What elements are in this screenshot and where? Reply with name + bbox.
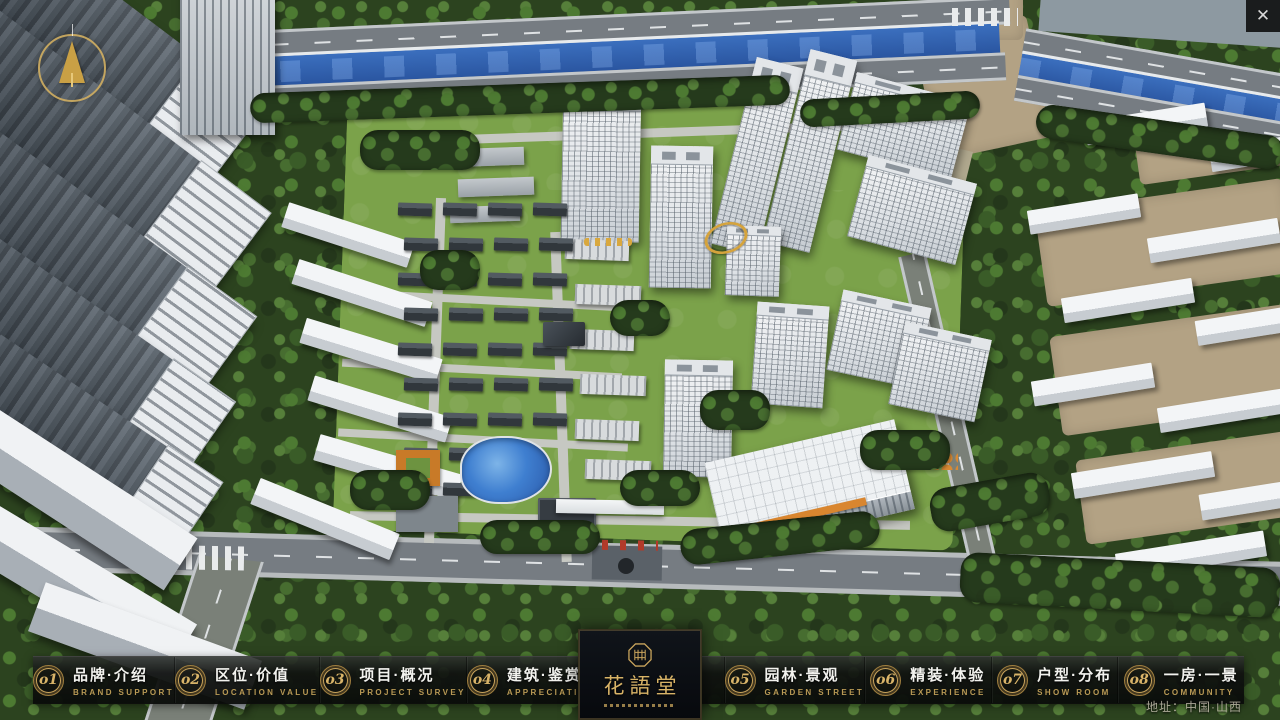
nav-number-badge: o7	[997, 665, 1028, 696]
pavilion	[543, 322, 585, 346]
midrise-building	[580, 374, 647, 396]
tree-clump	[360, 130, 480, 170]
nav-label-zh: 区位·价值	[215, 664, 290, 685]
crosswalk	[952, 8, 1018, 26]
nav-label-en: BRAND SUPPORT	[73, 688, 174, 697]
nav-number-badge: o4	[467, 665, 498, 696]
nav-item-floorplan-distribution[interactable]: o7户型·分布SHOW ROOM	[991, 657, 1118, 703]
nav-label-zh: 建筑·鉴赏	[507, 664, 582, 685]
nav-label-zh: 一房·一景	[1164, 664, 1239, 685]
tree-clump	[860, 430, 950, 470]
project-name: 花語堂	[599, 670, 682, 700]
residential-tower	[561, 89, 642, 242]
nav-label-zh: 品牌·介绍	[73, 664, 148, 685]
low-building	[458, 177, 535, 198]
nav-number-badge: o3	[320, 665, 351, 696]
nav-number-badge: o5	[725, 665, 756, 696]
residential-tower	[888, 322, 992, 422]
midrise-building	[575, 419, 640, 441]
nav-number-badge: o2	[175, 665, 206, 696]
logo-seal-icon	[627, 642, 653, 668]
nav-item-architecture[interactable]: o4建筑·鉴赏APPRECIATION	[466, 657, 596, 703]
nav-number-badge: o8	[1124, 665, 1155, 696]
tree-clump	[610, 300, 670, 336]
low-building	[450, 205, 521, 223]
nav-item-garden-landscape[interactable]: o5园林·景观GARDEN STREET	[724, 657, 865, 703]
nav-label-zh: 户型·分布	[1037, 664, 1112, 685]
nav-label-zh: 项目·概况	[360, 664, 435, 685]
address-text: 地址：中国·山西	[1146, 698, 1242, 715]
nav-item-project-overview[interactable]: o3项目·概况PROJECT SURVEY	[319, 657, 466, 703]
project-tagline	[604, 704, 676, 707]
close-button[interactable]: ✕	[1246, 0, 1280, 32]
nav-item-brand-intro[interactable]: o1品牌·介绍BRAND SUPPORT	[33, 657, 174, 703]
nav-item-location-value[interactable]: o2区位·价值LOCATION VALUE	[174, 657, 319, 703]
nav-label-en: COMMUNITY	[1164, 688, 1235, 697]
project-logo[interactable]: 花語堂	[578, 629, 702, 720]
nav-label-zh: 精装·体验	[910, 664, 985, 685]
nav-label-en: SHOW ROOM	[1037, 688, 1111, 697]
nav-number-badge: o6	[870, 665, 901, 696]
nav-group-right: o5园林·景观GARDEN STREETo6精装·体验EXPERIENCEo7户…	[724, 657, 1244, 703]
tree-clump	[620, 470, 700, 506]
tree-clump	[480, 520, 600, 554]
crosswalk	[186, 545, 244, 570]
nav-item-interior-experience[interactable]: o6精装·体验EXPERIENCE	[864, 657, 991, 703]
presentation-stage: ✕ o1品牌·介绍BRAND SUPPORTo2区位·价值LOCATION VA…	[0, 0, 1280, 720]
tree-clump	[350, 470, 430, 510]
residential-tower	[649, 145, 713, 288]
fountain	[618, 558, 634, 574]
nav-label-en: PROJECT SURVEY	[360, 688, 466, 697]
tree-clump	[700, 390, 770, 430]
compass-icon	[38, 34, 106, 102]
nav-label-en: EXPERIENCE	[910, 688, 986, 697]
tree-clump	[420, 250, 480, 290]
nav-number-badge: o1	[33, 665, 64, 696]
nav-label-en: LOCATION VALUE	[215, 688, 319, 697]
nav-item-room-view[interactable]: o8一房·一景COMMUNITY	[1117, 657, 1244, 703]
nav-label-en: GARDEN STREET	[765, 688, 865, 697]
nav-label-zh: 园林·景观	[765, 664, 840, 685]
nav-group-left: o1品牌·介绍BRAND SUPPORTo2区位·价值LOCATION VALU…	[33, 657, 596, 703]
sculpture-row	[584, 238, 632, 246]
